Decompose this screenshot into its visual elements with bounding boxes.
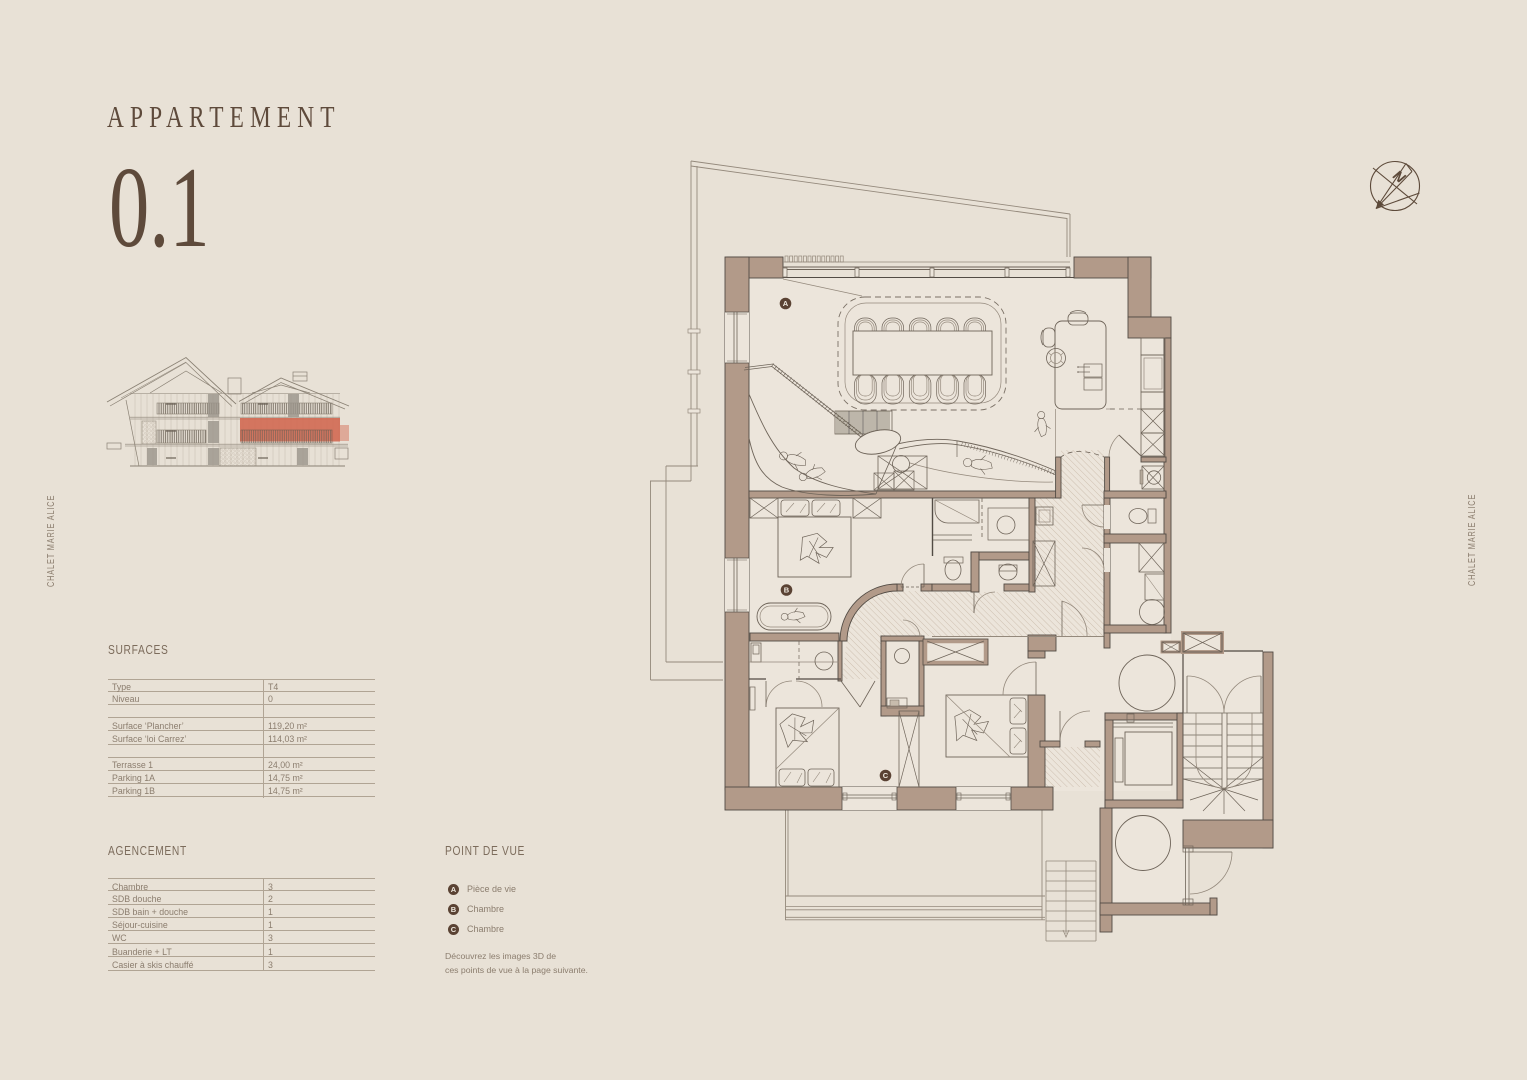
svg-text:C: C (883, 771, 889, 780)
svg-text:B: B (784, 586, 790, 595)
svg-text:A: A (783, 299, 789, 308)
